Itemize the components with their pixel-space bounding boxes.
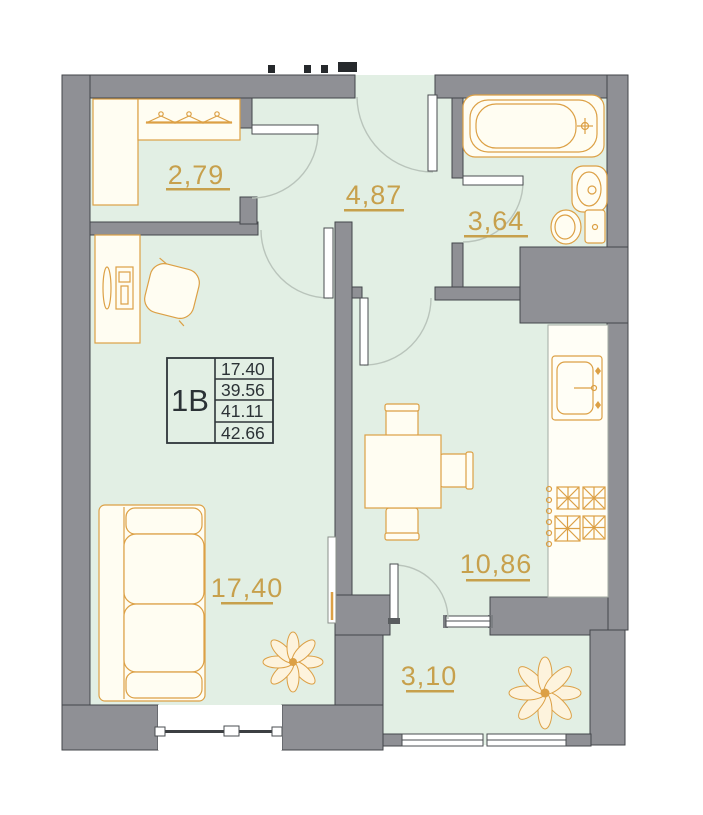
balcony-door-window	[443, 615, 493, 628]
living-area-label: 17,40	[211, 573, 284, 603]
bathtub-icon	[463, 95, 604, 157]
unit-area-row: 17.40	[221, 359, 265, 379]
living-door-leaf	[324, 228, 333, 298]
radiator-icon	[328, 537, 336, 623]
unit-area-row: 39.56	[221, 380, 265, 400]
hallway-area-label: 4,87	[346, 180, 403, 210]
plant-icon	[509, 657, 581, 729]
balcony-door-leaf	[390, 564, 398, 620]
entrance-threshold-marks	[268, 62, 357, 73]
kitchen-door-leaf	[360, 298, 368, 365]
desk-icon	[95, 235, 140, 343]
wardrobe-area-label: 2,79	[168, 160, 225, 190]
kitchen-area-label: 10,86	[460, 549, 533, 579]
living-room-window	[155, 705, 282, 750]
plant-icon	[263, 632, 323, 692]
unit-area-row: 42.66	[221, 423, 265, 443]
bathroom-door-leaf	[463, 176, 523, 185]
sofa-icon	[99, 505, 205, 701]
entrance-door-leaf	[428, 95, 437, 171]
bathroom-sink-icon	[572, 166, 607, 212]
floor-plan-page: 2,79 4,87 3,64 17,40 10,86 3,10 1B 17.40…	[0, 0, 703, 815]
bathroom-area-label: 3,64	[468, 206, 525, 236]
floor-plan-svg: 2,79 4,87 3,64 17,40 10,86 3,10 1B 17.40…	[0, 0, 703, 815]
wardrobe-door-leaf	[252, 125, 318, 134]
unit-code: 1B	[171, 383, 209, 418]
balcony-area-label: 3,10	[401, 661, 458, 691]
kitchen-counter	[548, 325, 608, 597]
unit-area-row: 41.11	[221, 401, 264, 421]
